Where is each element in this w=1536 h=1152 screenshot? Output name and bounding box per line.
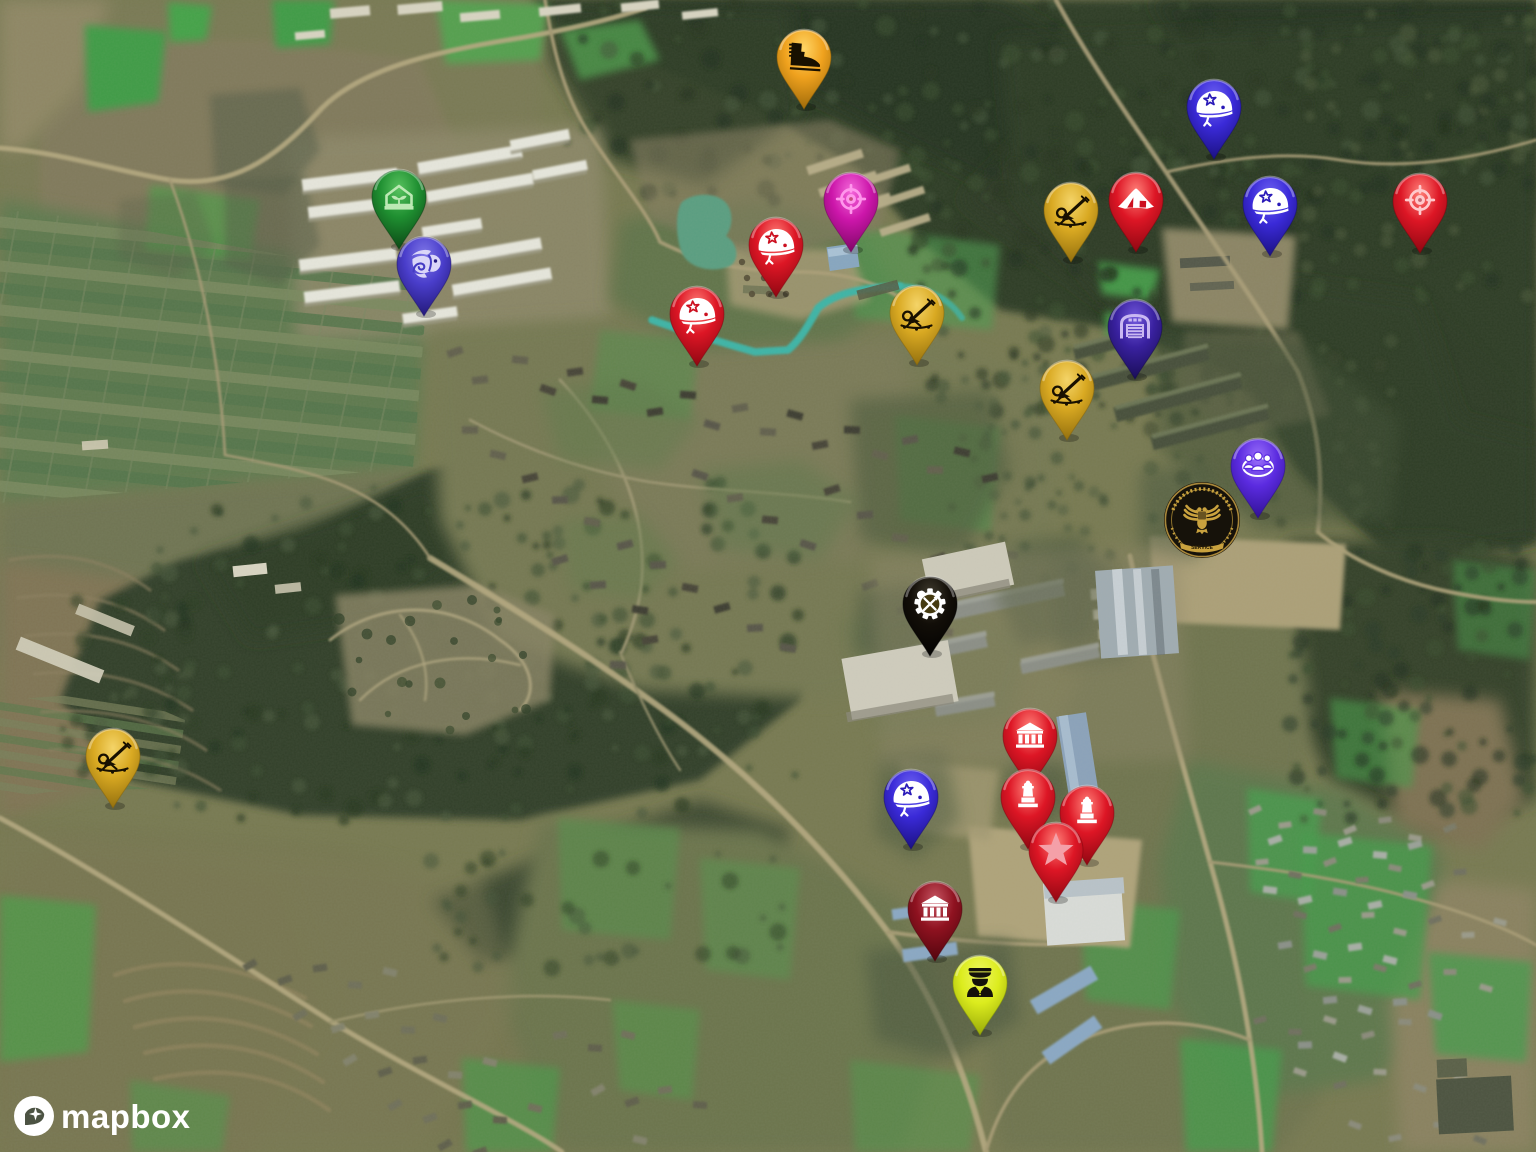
svg-text:SERVICE: SERVICE <box>1191 545 1214 551</box>
svg-text:mapbox: mapbox <box>61 1098 191 1135</box>
